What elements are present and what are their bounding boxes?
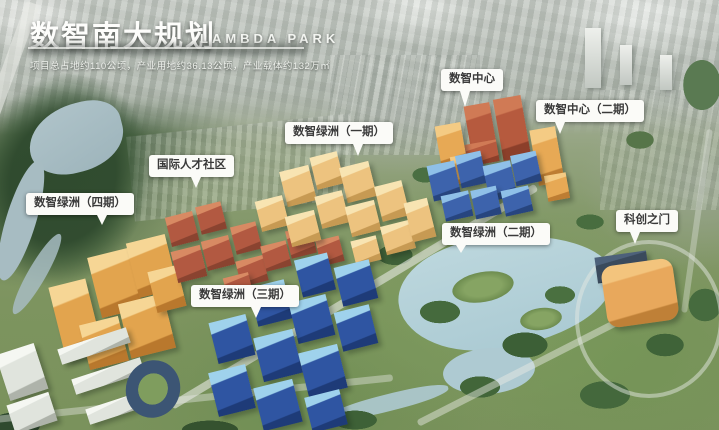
lambda-park-plan: 数智中心数智中心（二期）数智绿洲（一期）国际人才社区数智绿洲（四期）数智绿洲（二… <box>0 0 719 430</box>
label-kechuang-gate-text: 科创之门 <box>624 214 670 226</box>
label-oasis-phase4: 数智绿洲（四期） <box>26 193 134 215</box>
label-talent-community: 国际人才社区 <box>149 155 234 177</box>
label-oasis-phase1-text: 数智绿洲（一期） <box>293 126 385 138</box>
label-digital-center-phase2: 数智中心（二期） <box>536 100 644 122</box>
label-oasis-phase3-text: 数智绿洲（三期） <box>199 289 291 301</box>
label-talent-community-text: 国际人才社区 <box>157 159 226 171</box>
map-labels: 数智中心数智中心（二期）数智绿洲（一期）国际人才社区数智绿洲（四期）数智绿洲（二… <box>0 0 719 430</box>
aerial-rendering: 数智中心数智中心（二期）数智绿洲（一期）国际人才社区数智绿洲（四期）数智绿洲（二… <box>0 0 719 430</box>
label-kechuang-gate: 科创之门 <box>616 210 678 232</box>
label-oasis-phase2-text: 数智绿洲（二期） <box>450 227 542 239</box>
label-oasis-phase4-text: 数智绿洲（四期） <box>34 197 126 209</box>
label-digital-center: 数智中心 <box>441 69 503 91</box>
label-oasis-phase2: 数智绿洲（二期） <box>442 223 550 245</box>
label-digital-center-phase2-text: 数智中心（二期） <box>544 104 636 116</box>
label-oasis-phase3: 数智绿洲（三期） <box>191 285 299 307</box>
label-oasis-phase1: 数智绿洲（一期） <box>285 122 393 144</box>
label-digital-center-text: 数智中心 <box>449 73 495 85</box>
